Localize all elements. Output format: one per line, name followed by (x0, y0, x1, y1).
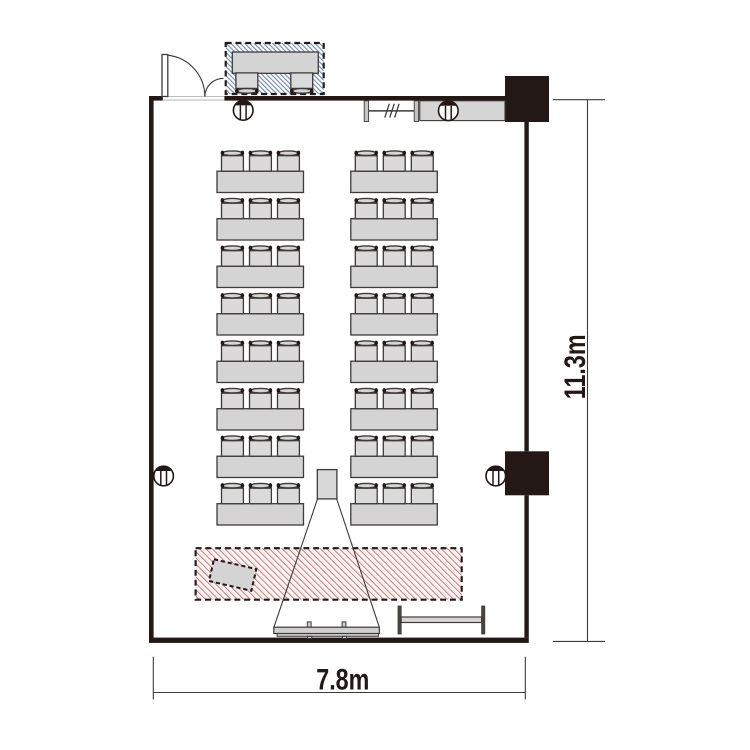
svg-text:7.8m: 7.8m (316, 663, 369, 696)
svg-text:11.3m: 11.3m (558, 334, 591, 399)
